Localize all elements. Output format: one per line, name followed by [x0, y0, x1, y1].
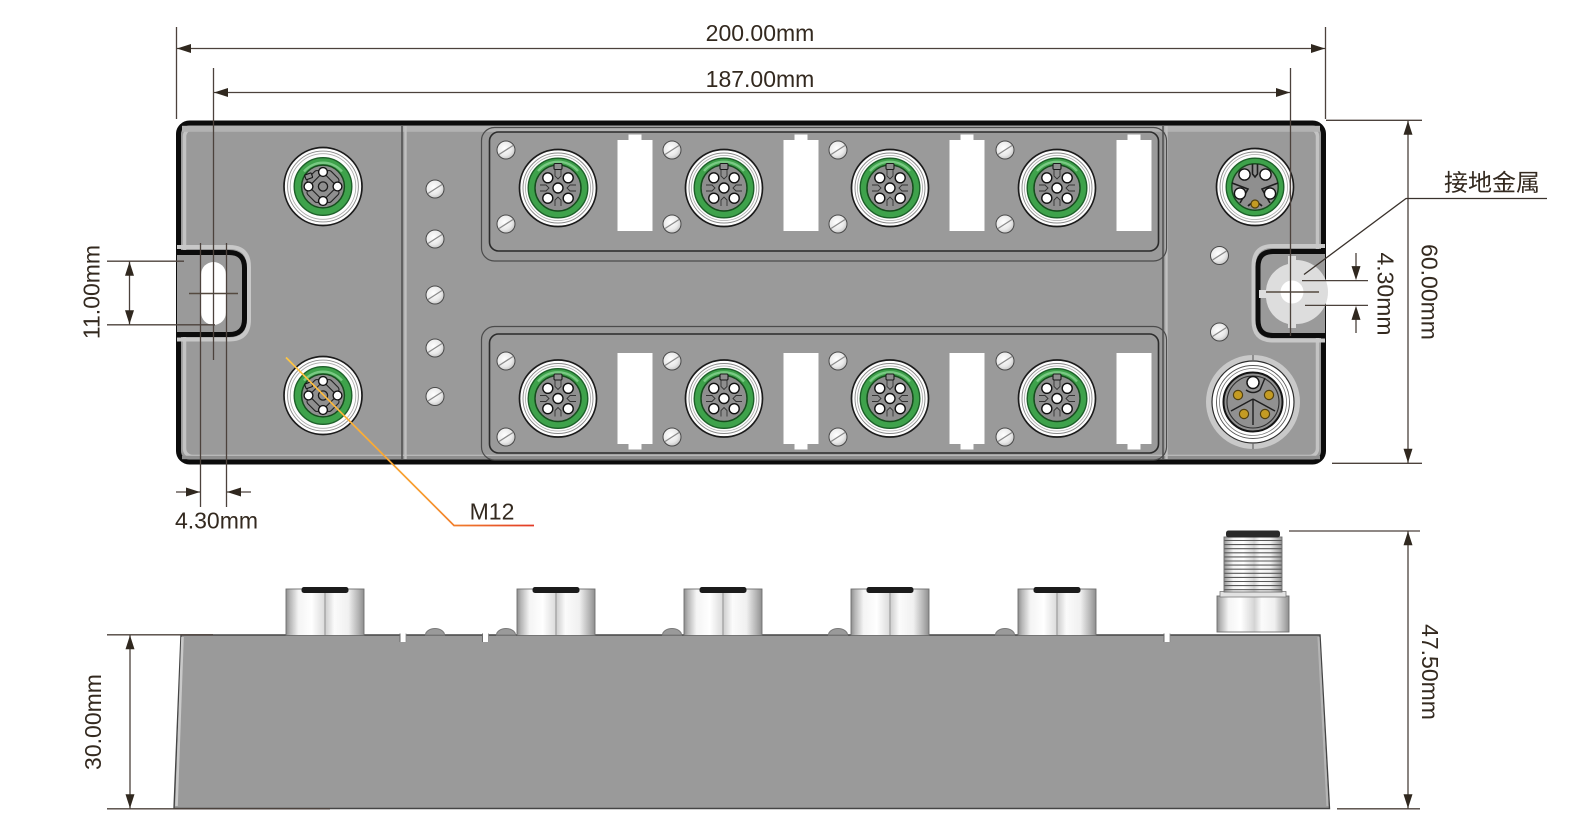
svg-text:11.00mm: 11.00mm: [79, 245, 105, 339]
svg-text:200.00mm: 200.00mm: [706, 20, 815, 46]
svg-text:4.30mm: 4.30mm: [175, 508, 258, 534]
svg-text:30.00mm: 30.00mm: [80, 674, 106, 770]
svg-text:M12: M12: [470, 499, 515, 525]
svg-text:187.00mm: 187.00mm: [706, 66, 815, 92]
svg-text:60.00mm: 60.00mm: [1417, 244, 1443, 340]
svg-text:47.50mm: 47.50mm: [1417, 624, 1443, 720]
svg-text:4.30mm: 4.30mm: [1373, 252, 1399, 335]
